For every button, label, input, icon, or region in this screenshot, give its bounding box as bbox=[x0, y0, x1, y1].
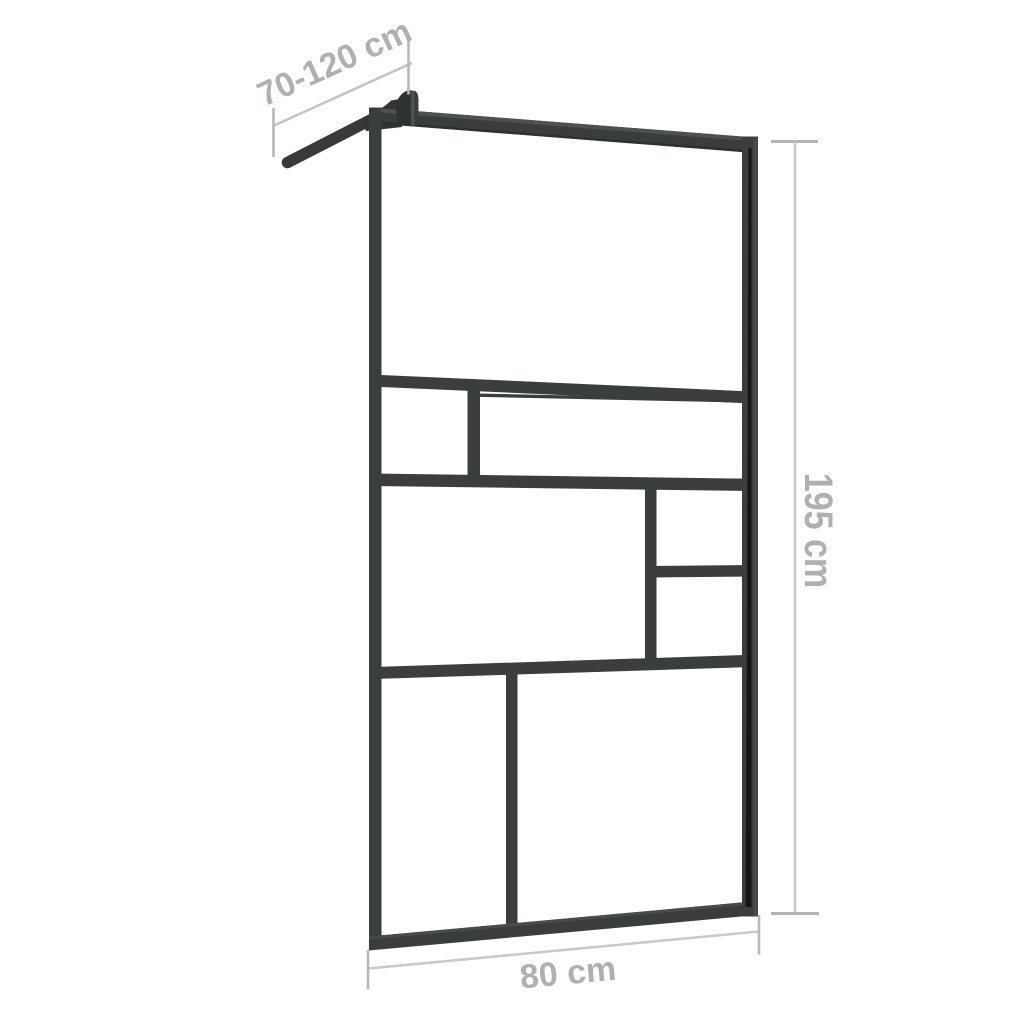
svg-text:80 cm: 80 cm bbox=[518, 950, 618, 997]
svg-text:195 cm: 195 cm bbox=[796, 473, 840, 588]
